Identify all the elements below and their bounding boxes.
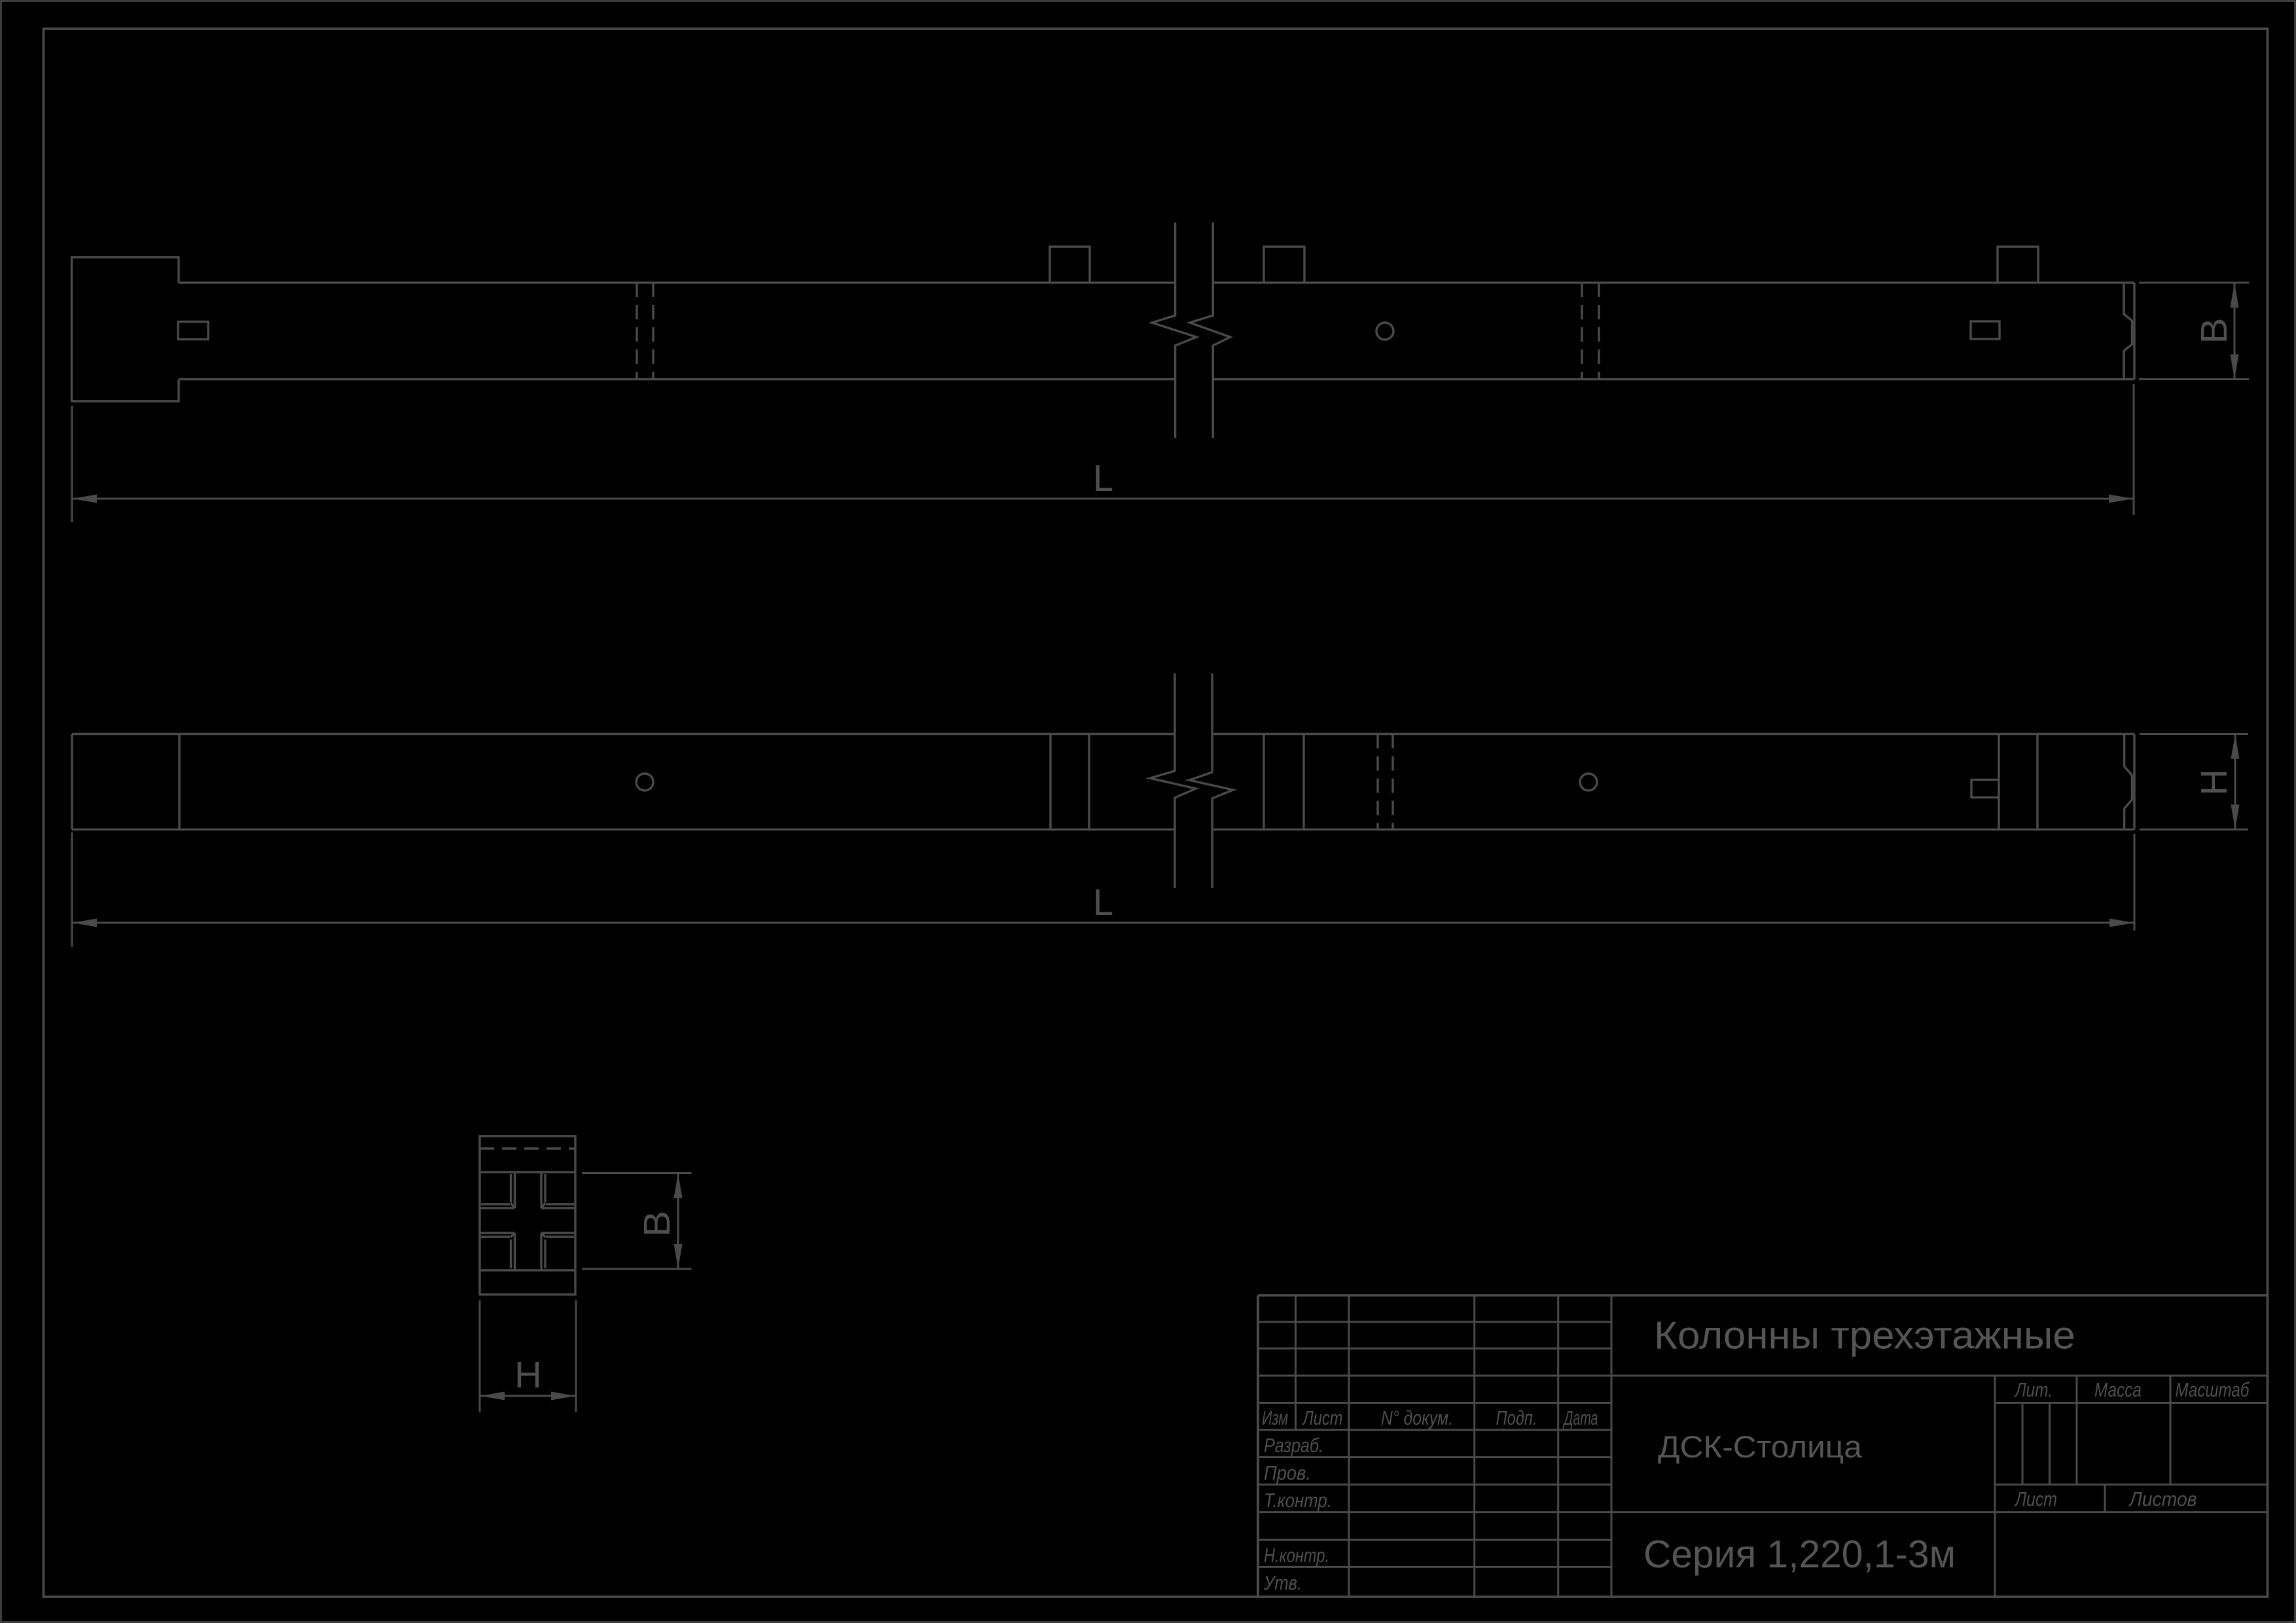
svg-text:Лит.: Лит. bbox=[2014, 1378, 2053, 1400]
svg-text:Лист: Лист bbox=[1302, 1406, 1343, 1429]
svg-text:H: H bbox=[514, 1354, 542, 1396]
svg-text:Пров.: Пров. bbox=[1264, 1462, 1311, 1484]
svg-text:Изм: Изм bbox=[1262, 1406, 1288, 1429]
svg-text:Масштаб: Масштаб bbox=[2176, 1378, 2250, 1401]
svg-text:Т.контр.: Т.контр. bbox=[1264, 1489, 1332, 1512]
svg-text:ДСК-Столица: ДСК-Столица bbox=[1658, 1430, 1862, 1465]
svg-text:L: L bbox=[1093, 882, 1113, 923]
svg-text:Разраб.: Разраб. bbox=[1264, 1433, 1323, 1456]
svg-text:Масса: Масса bbox=[2094, 1378, 2142, 1400]
svg-text:Колонны трехэтажные: Колонны трехэтажные bbox=[1654, 1313, 2075, 1357]
svg-text:Утв.: Утв. bbox=[1263, 1572, 1302, 1595]
svg-text:Подп.: Подп. bbox=[1496, 1406, 1537, 1429]
svg-text:Лист: Лист bbox=[2014, 1488, 2057, 1510]
svg-text:B: B bbox=[2193, 318, 2235, 344]
svg-text:L: L bbox=[1093, 457, 1113, 499]
svg-text:N° докум.: N° докум. bbox=[1381, 1406, 1453, 1429]
svg-text:Н.контр.: Н.контр. bbox=[1264, 1544, 1329, 1567]
svg-text:Серия 1,220,1-3м: Серия 1,220,1-3м bbox=[1643, 1533, 1956, 1576]
svg-text:B: B bbox=[636, 1211, 678, 1237]
svg-text:H: H bbox=[2193, 770, 2235, 796]
svg-text:Листов: Листов bbox=[2128, 1488, 2197, 1510]
svg-text:Дата: Дата bbox=[1562, 1406, 1598, 1429]
